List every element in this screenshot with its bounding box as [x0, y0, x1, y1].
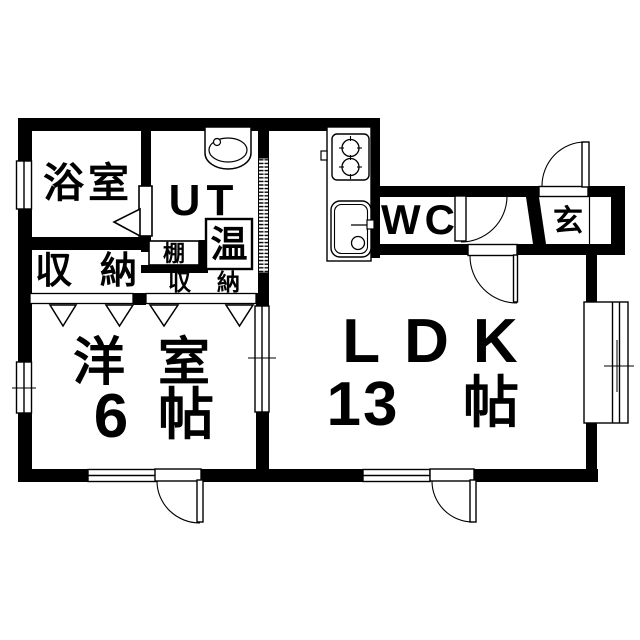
wall-entrance-bottom: [517, 244, 625, 255]
floorplan-drawing: 浴室 UT 温 棚 収納 収納 WC 玄 洋室 6 帖 LDK 13 帖: [0, 0, 640, 640]
shelf-label: 棚: [163, 241, 185, 266]
washbasin-icon: [205, 127, 251, 169]
wall-bottom-b: [200, 469, 363, 482]
ldk-size-unit: 帖: [463, 371, 519, 434]
western-room-south-window-icon: [88, 470, 157, 482]
utility-accordion-door-icon: [259, 158, 269, 273]
kitchen-counter: [321, 127, 374, 261]
bathroom-window-icon: [17, 161, 32, 209]
wall-right-above-bay: [586, 254, 597, 305]
ldk-label: LDK: [342, 307, 541, 376]
wall-bath-ut-upper: [141, 131, 151, 187]
closet-lower-track: [146, 294, 256, 304]
wall-closet-band-divider: [133, 293, 146, 305]
floorplan: 浴室 UT 温 棚 収納 収納 WC 玄 洋室 6 帖 LDK 13 帖: [0, 0, 640, 640]
closet-upper-track: [30, 294, 133, 304]
wall-wc-bottom: [372, 244, 468, 255]
utility-label: UT: [169, 176, 240, 225]
kitchen-sink-icon: [331, 201, 374, 257]
wall-right-below-bay: [586, 421, 597, 482]
western-room-size-unit: 帖: [158, 383, 214, 446]
paper-background: [0, 0, 640, 640]
bay-window-icon: [584, 302, 634, 423]
ldk-south-window-icon: [363, 470, 430, 482]
wall-top: [18, 118, 380, 131]
closet-lower-label: 収納: [168, 269, 266, 295]
wall-ut-right-upper: [258, 131, 269, 158]
wall-bottom-a: [18, 469, 88, 482]
wall-bath-closet: [18, 237, 151, 250]
wc-label: WC: [381, 196, 459, 243]
bathroom-label: 浴室: [43, 160, 133, 206]
wall-right-upper: [611, 186, 625, 254]
ldk-size-value: 13: [327, 370, 400, 439]
water-heater-label: 温: [211, 224, 248, 265]
wall-bottom-c: [473, 469, 598, 482]
closet-upper-label: 収納: [35, 250, 165, 291]
entrance-label: 玄: [553, 204, 583, 238]
wall-western-ldk-lower: [256, 412, 269, 469]
western-room-size-value: 6: [94, 382, 130, 451]
